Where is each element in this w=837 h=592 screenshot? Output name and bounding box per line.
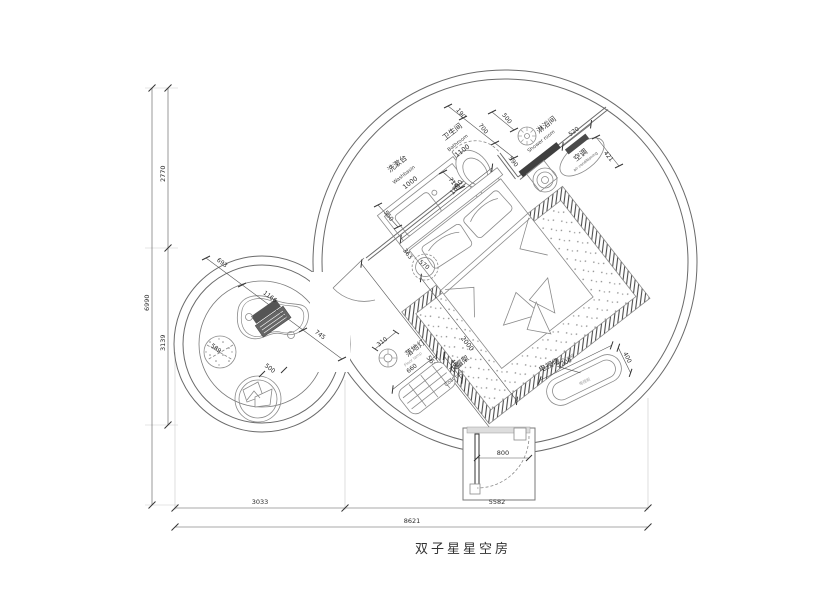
dim-421: 421 [602,150,615,163]
cup-icon [246,314,253,321]
round-chair: 500 [235,362,287,422]
shower-head-icon [518,127,536,145]
door-jamb [514,428,526,440]
page-title: 双子星星空房 [415,541,511,557]
dim-6990: 6990 [143,294,151,311]
shower-glass-wall [519,142,561,177]
dim-3139: 3139 [159,334,167,351]
laptop [249,298,291,337]
dim-left-column: 6990 2770 3139 [143,85,172,509]
dim-800: 800 [497,449,509,457]
dim-500-chair: 500 [263,362,277,375]
dim-2770: 2770 [159,165,167,182]
circle-connector [310,258,375,372]
dim-3033: 3033 [252,498,269,506]
floor-lamp: 310 落地灯 Floor lamp [372,330,427,368]
entry-door-leaf [475,434,479,488]
dim-5582: 5582 [489,498,506,506]
dim-310: 310 [376,336,389,349]
faucet-icon [431,189,438,196]
dim-bottom-row: 3033 5582 8621 [172,498,652,531]
dim-590: 590 [507,155,520,168]
dim-190: 190 [454,107,467,120]
door-hinge [470,484,480,494]
dim-700: 700 [477,122,490,135]
ottoman: 589 [204,336,236,368]
dim-693: 693 [215,257,229,270]
floor-plan-canvas: 空调 air conditioning 520 421 [0,0,837,592]
dim-550: 550 [382,209,395,222]
entry-vestibule: 800 [463,427,535,500]
floor-plan-page: 空调 air conditioning 520 421 [0,0,837,592]
dim-8621: 8621 [404,517,421,525]
dim-500: 500 [500,112,513,125]
dim-520: 520 [567,125,580,138]
